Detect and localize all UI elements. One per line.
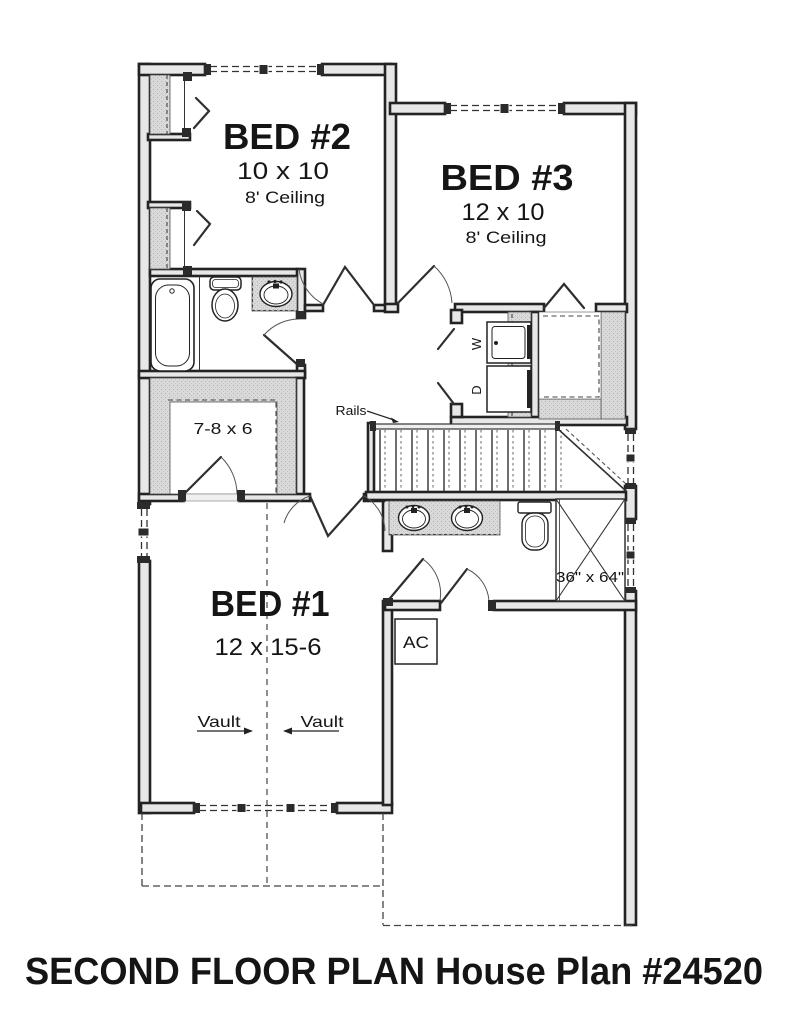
svg-text:36" x 64": 36" x 64" (556, 569, 624, 586)
svg-text:W: W (469, 337, 484, 350)
svg-text:7-8 x 6: 7-8 x 6 (194, 421, 253, 438)
svg-text:Rails: Rails (336, 403, 368, 418)
svg-text:AC: AC (403, 633, 429, 652)
svg-text:12 x 15-6: 12 x 15-6 (215, 634, 322, 661)
svg-text:Vault: Vault (198, 714, 242, 731)
svg-text:10 x 10: 10 x 10 (237, 158, 329, 185)
svg-text:D: D (469, 385, 484, 394)
svg-text:SECOND FLOOR PLAN House Plan #: SECOND FLOOR PLAN House Plan #24520 (25, 951, 763, 993)
svg-text:8' Ceiling: 8' Ceiling (466, 228, 547, 247)
svg-text:Vault: Vault (301, 714, 345, 731)
svg-text:BED #3: BED #3 (441, 157, 574, 198)
svg-text:12 x 10: 12 x 10 (462, 199, 545, 226)
svg-text:BED #2: BED #2 (223, 116, 351, 157)
svg-text:BED #1: BED #1 (211, 583, 330, 624)
svg-text:8' Ceiling: 8' Ceiling (245, 188, 325, 207)
